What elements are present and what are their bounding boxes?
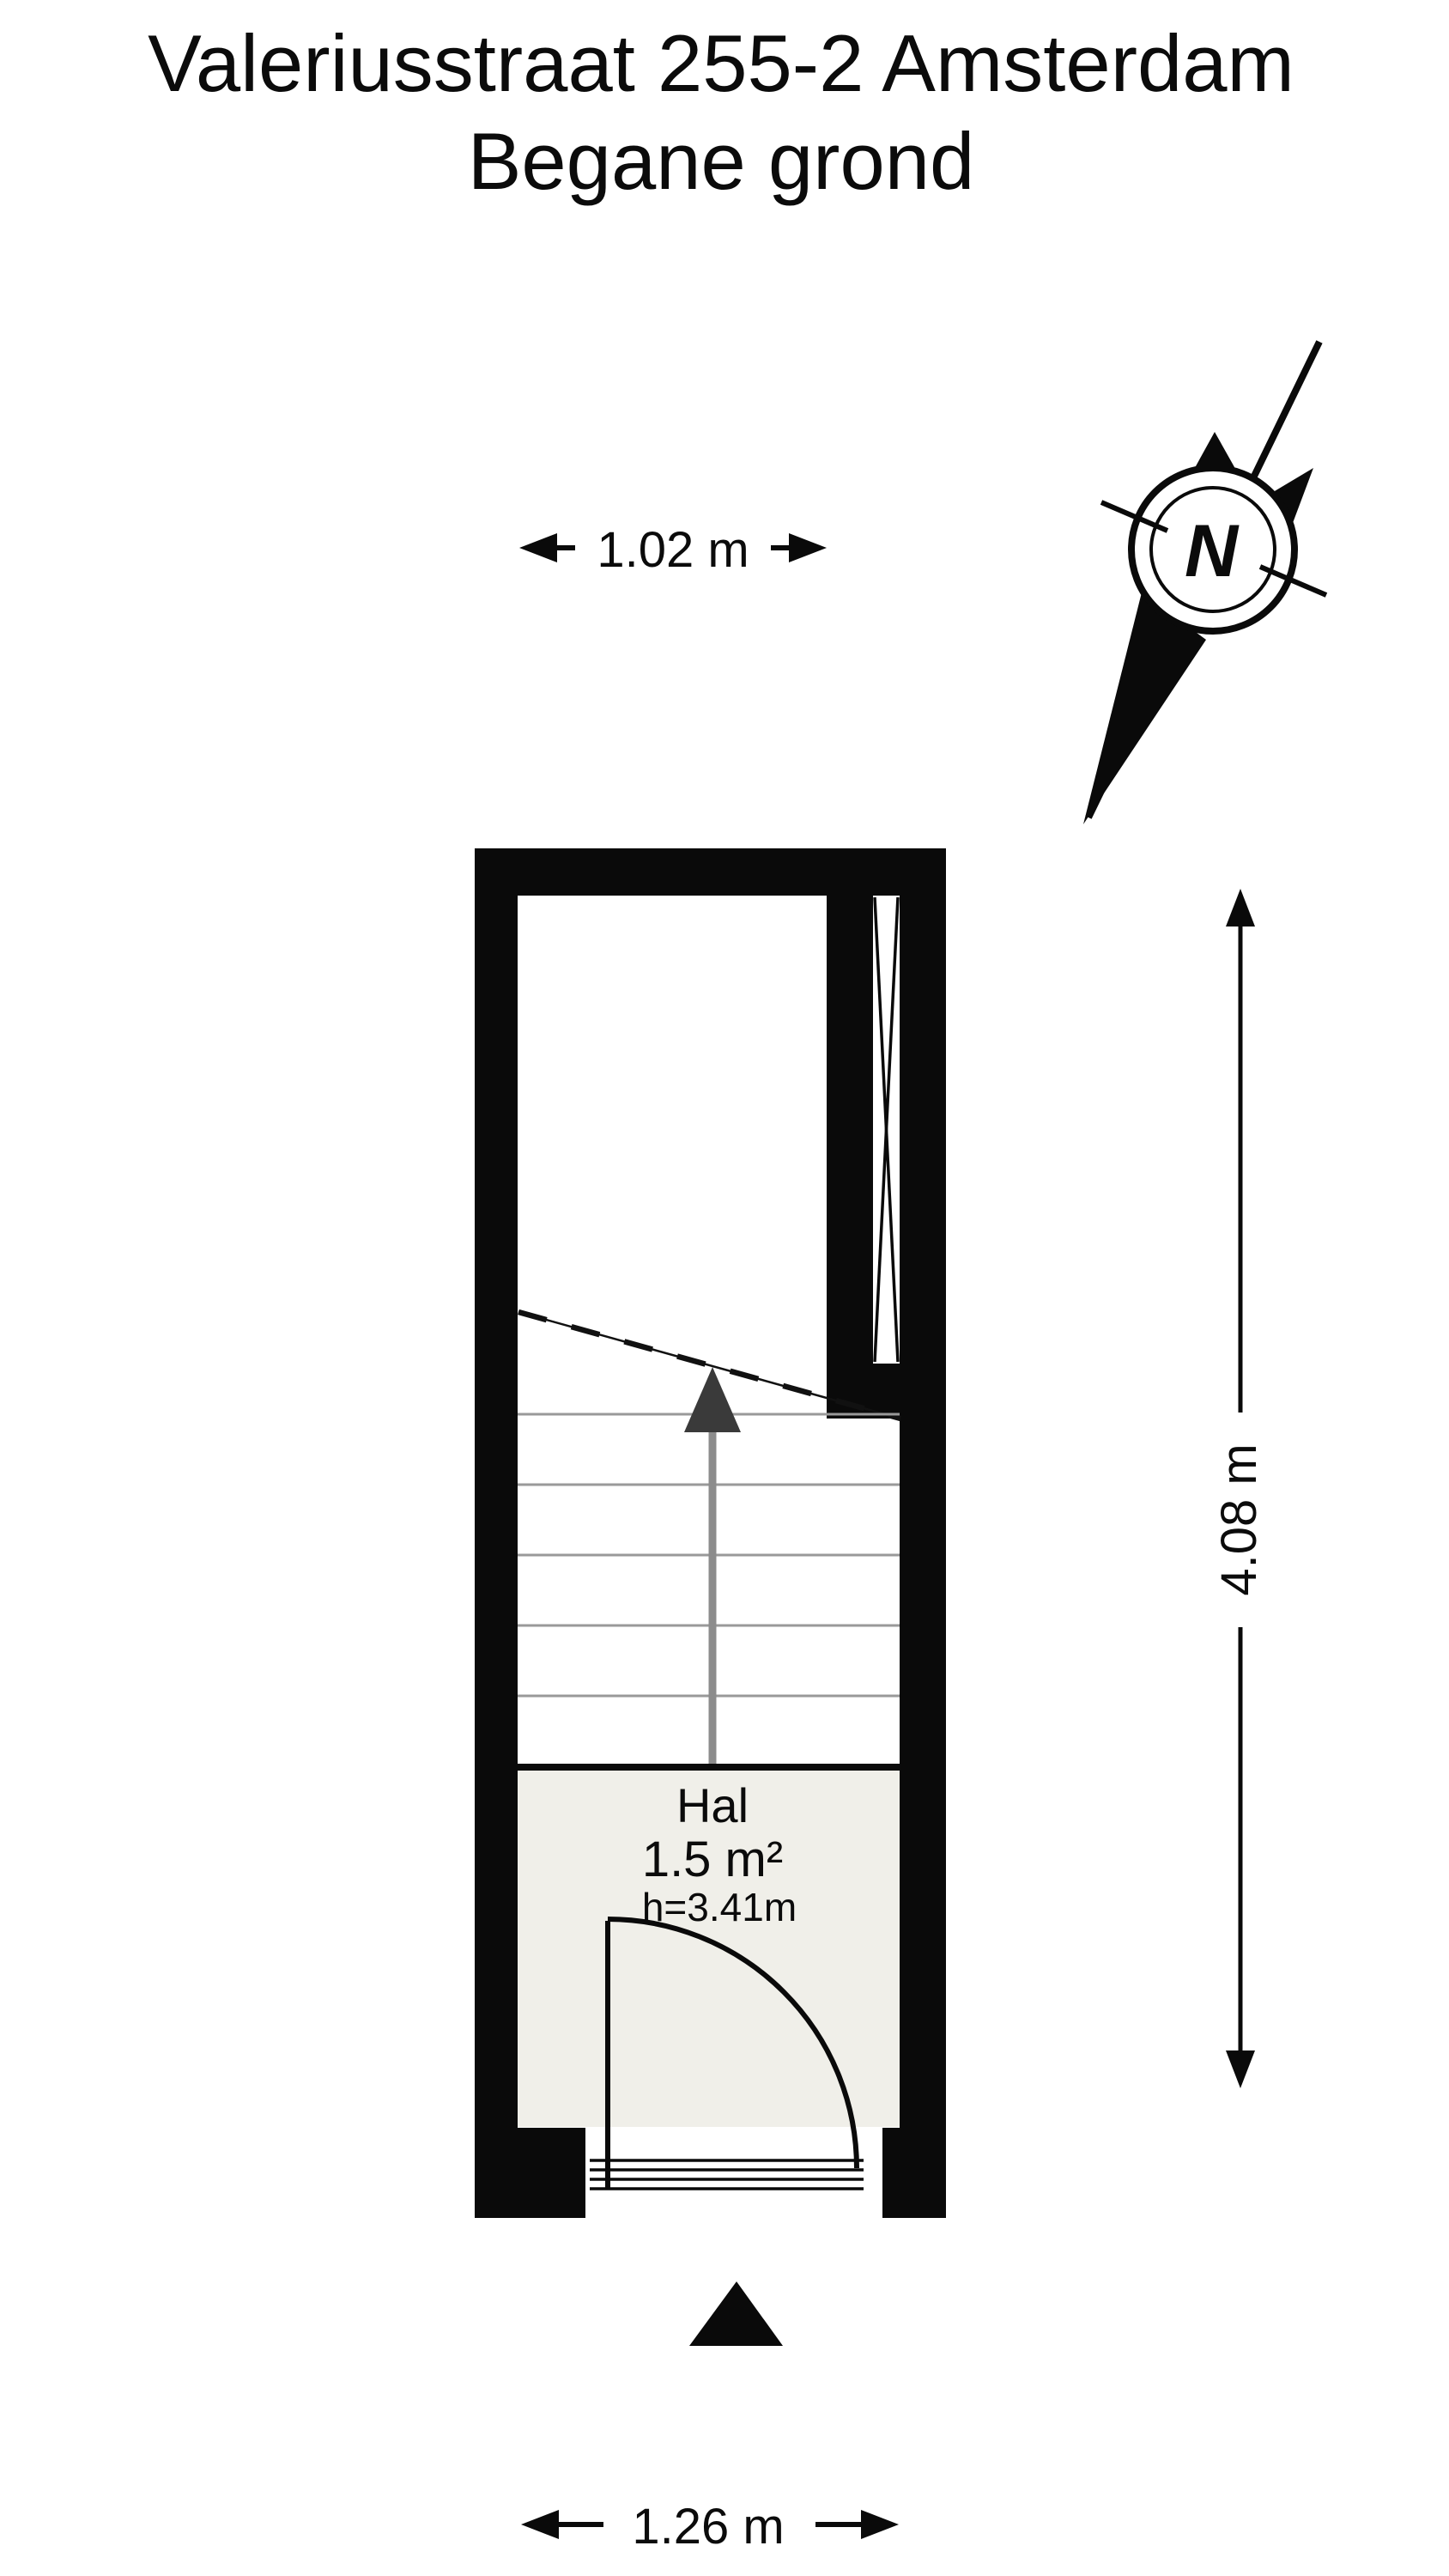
dimension-bottom-label: 1.26 m [632, 2499, 784, 2555]
dimension-top: 1.02 m [519, 522, 827, 578]
wall-shaft-cap [873, 1364, 900, 1419]
wall-left [475, 848, 518, 2128]
dimension-bottom: 1.26 m [521, 2499, 899, 2555]
floorplan-page: Valeriusstraat 255-2 Amsterdam Begane gr… [0, 0, 1449, 2576]
dimension-top-label: 1.02 m [597, 522, 749, 578]
dimension-right-bottom-arrowhead [1226, 2050, 1255, 2088]
wall-top [475, 848, 946, 896]
dimension-top-right-arrowhead [789, 533, 827, 562]
entrance-marker-triangle [689, 2281, 783, 2346]
stair-direction-arrow [684, 1367, 741, 1764]
room-area-label: 1.5 m² [642, 1832, 783, 1887]
wall-right [900, 848, 946, 2128]
compass-north-label: N [1185, 510, 1240, 592]
dimension-bottom-right-arrowhead [861, 2510, 899, 2539]
hall-boundary-line [518, 1764, 900, 1771]
shaft-window [873, 896, 900, 1364]
plan-title-line1: Valeriusstraat 255-2 Amsterdam [148, 18, 1294, 108]
compass-rose: N [1083, 342, 1326, 824]
dimension-right-label: 4.08 m [1211, 1443, 1267, 1595]
room-name-label: Hal [676, 1778, 749, 1832]
door-threshold [590, 2160, 864, 2189]
door-jamb-right [882, 2128, 946, 2218]
room-ceiling-height-label: h=3.41m [642, 1885, 797, 1929]
wall-inner-stairwell [827, 896, 873, 1419]
plan-title-line2: Begane grond [468, 116, 975, 206]
door-jamb-left [475, 2128, 585, 2218]
dimension-bottom-left-arrowhead [521, 2510, 559, 2539]
floorplan-canvas: Valeriusstraat 255-2 Amsterdam Begane gr… [0, 0, 1449, 2576]
door-leaf [605, 1921, 610, 2188]
stair-arrow-head [684, 1367, 741, 1432]
dimension-top-left-arrowhead [519, 533, 557, 562]
dimension-right: 4.08 m [1211, 889, 1267, 2088]
